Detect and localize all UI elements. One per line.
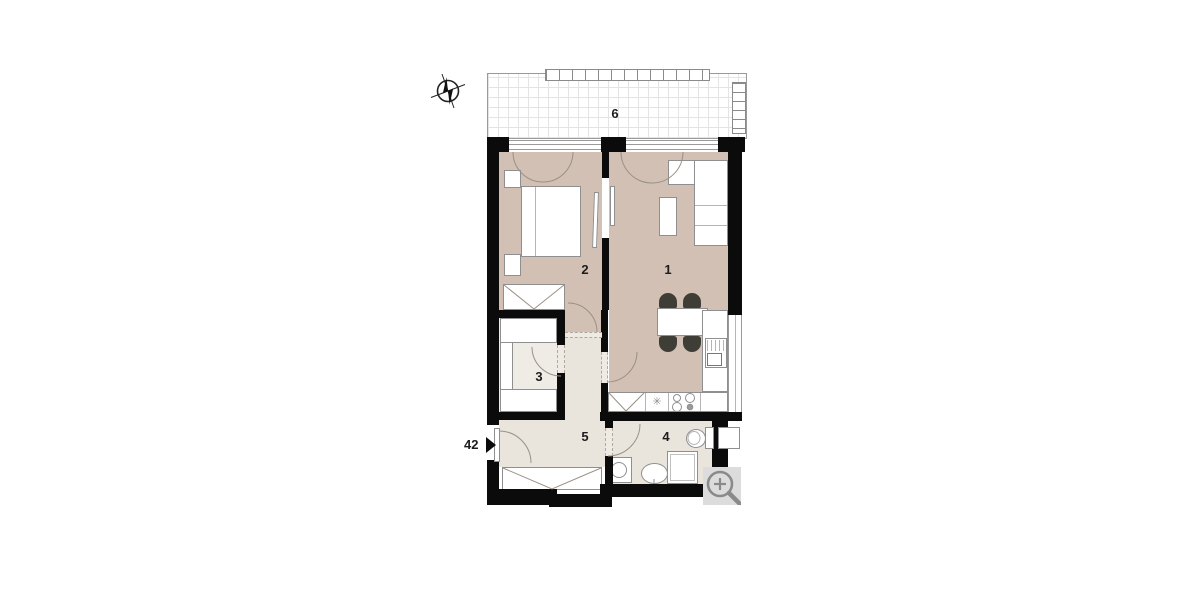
room-label-bedroom: 2 xyxy=(576,263,594,277)
room-label-living: 1 xyxy=(659,263,677,277)
room-label-bathroom: 4 xyxy=(657,430,675,444)
magnifier-icon xyxy=(703,467,741,505)
unit-number: 42 xyxy=(464,437,478,452)
zoom-button[interactable] xyxy=(703,467,741,505)
room-label-storage: 3 xyxy=(530,370,548,384)
room-label-hallway: 5 xyxy=(576,430,594,444)
floor-plan-canvas: ✳ xyxy=(0,0,1200,600)
entrance-arrow-icon xyxy=(486,437,496,453)
door-swing-and-detail-overlay xyxy=(0,0,1200,600)
room-label-terrace: 6 xyxy=(606,107,624,121)
